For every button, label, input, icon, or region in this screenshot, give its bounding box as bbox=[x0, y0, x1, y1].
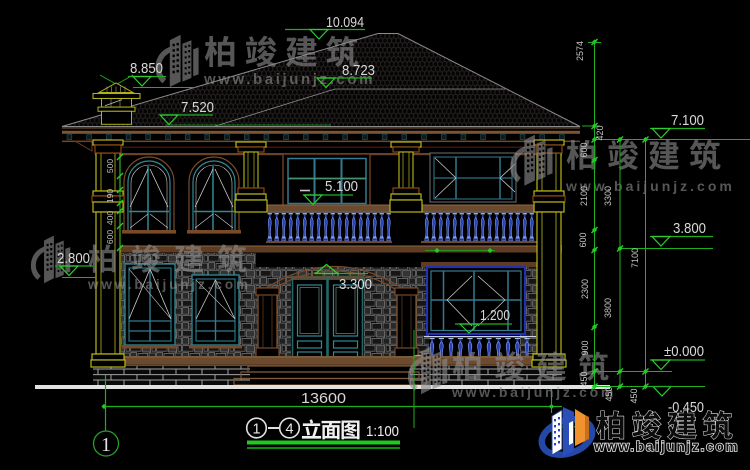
svg-text:450: 450 bbox=[629, 388, 639, 403]
svg-text:10.094: 10.094 bbox=[326, 14, 364, 31]
svg-text:1.200: 1.200 bbox=[480, 307, 510, 324]
svg-text:www.baijunjz.com: www.baijunjz.com bbox=[451, 384, 616, 400]
svg-text:900: 900 bbox=[580, 340, 590, 355]
svg-text:500: 500 bbox=[105, 159, 115, 173]
svg-text:3.300: 3.300 bbox=[339, 276, 372, 293]
svg-text:420: 420 bbox=[595, 125, 605, 140]
svg-text:600: 600 bbox=[578, 232, 588, 247]
svg-text:8.723: 8.723 bbox=[342, 62, 375, 79]
svg-text:1: 1 bbox=[252, 422, 260, 438]
svg-text:1:100: 1:100 bbox=[366, 423, 399, 440]
svg-text:-0.450: -0.450 bbox=[668, 399, 704, 416]
svg-text:www.baijunjz.com: www.baijunjz.com bbox=[87, 277, 251, 292]
svg-text:600: 600 bbox=[579, 142, 589, 157]
svg-text:3300: 3300 bbox=[603, 186, 613, 206]
svg-text:450: 450 bbox=[579, 371, 589, 386]
svg-text:±0.000: ±0.000 bbox=[664, 343, 704, 360]
svg-text:8.850: 8.850 bbox=[130, 60, 163, 77]
svg-text:2100: 2100 bbox=[579, 186, 589, 206]
svg-text:13600: 13600 bbox=[301, 390, 346, 407]
svg-text:600: 600 bbox=[105, 230, 115, 244]
svg-text:www.baijunjz.com: www.baijunjz.com bbox=[593, 439, 739, 454]
svg-text:190: 190 bbox=[105, 189, 115, 203]
svg-text:7100: 7100 bbox=[630, 248, 640, 268]
svg-text:4: 4 bbox=[285, 422, 293, 438]
svg-text:2.800: 2.800 bbox=[57, 250, 90, 267]
svg-text:www.baijunjz.com: www.baijunjz.com bbox=[565, 178, 735, 194]
svg-text:2300: 2300 bbox=[580, 279, 590, 299]
svg-text:3.800: 3.800 bbox=[673, 220, 706, 237]
svg-text:7.520: 7.520 bbox=[181, 99, 214, 116]
svg-text:5.100: 5.100 bbox=[325, 178, 358, 195]
svg-text:1: 1 bbox=[101, 434, 111, 456]
svg-text:7.100: 7.100 bbox=[671, 112, 704, 129]
svg-text:2574: 2574 bbox=[575, 41, 585, 61]
svg-text:450: 450 bbox=[604, 386, 614, 401]
svg-text:400: 400 bbox=[105, 211, 115, 225]
svg-text:3800: 3800 bbox=[603, 298, 613, 318]
